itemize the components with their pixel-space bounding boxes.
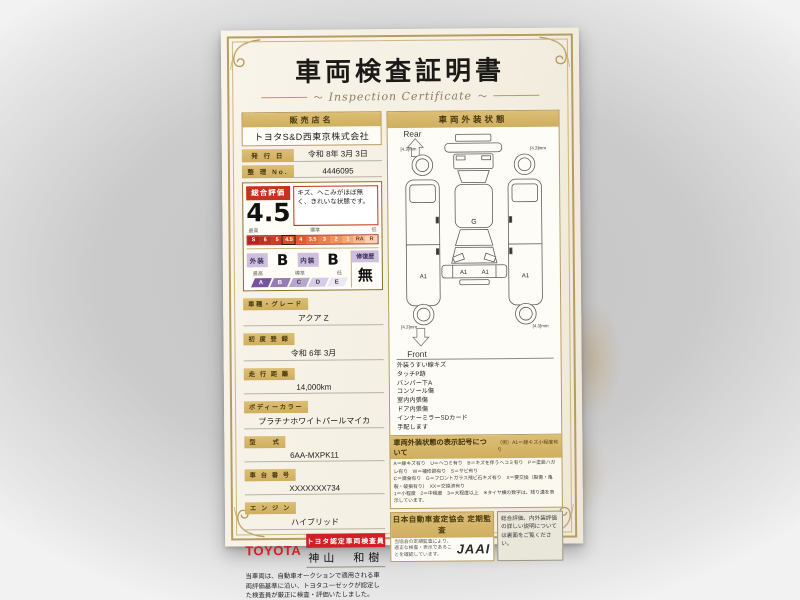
symbols-line: A＝線キズ有り U＝ヘコミ有り B＝キズを伴うヘコミ有り P＝塗装ハガレ有り W… (394, 460, 559, 476)
tire-depth-label: [4.3]mm (401, 324, 417, 329)
scale-cell-selected: 4.5 (283, 236, 295, 244)
scale-cell: 3.5 (307, 235, 319, 243)
field-chassis-number: 車 台 番 号 XXXXXXX734 (245, 463, 385, 495)
scale-high-label: 最高 (248, 227, 258, 234)
field-value: 6AA-MXPK11 (244, 448, 384, 462)
scale-mid-label: 標準 (295, 270, 305, 277)
field-engine: エ ン ジ ン ハイブリッド (245, 496, 385, 530)
field-value: ハイブリッド (245, 514, 385, 530)
field-label: 車 台 番 号 (245, 469, 296, 481)
ref-number-label: 整 理 No. (242, 164, 294, 177)
grade-scale-bar: A B C D E (247, 276, 348, 288)
left-door-mark: A1 (420, 274, 427, 280)
exterior-condition-title: 車両外装状態 (387, 111, 558, 128)
scale-cell: RA (354, 235, 366, 243)
rear-label: Rear (403, 129, 421, 139)
repair-history-value: 無 (352, 262, 379, 287)
inspector-badge: トヨタ認定車両検査員 (306, 533, 385, 548)
issue-date-value: 令和 8年 3月 3日 (294, 148, 382, 162)
jaai-logo: JAAI (457, 541, 491, 556)
repair-history-label: 修復歴 (352, 250, 379, 262)
ornament: ～ (478, 89, 487, 102)
ref-number-row: 整 理 No. 4446095 (242, 164, 382, 178)
scale-low-label: 低 (371, 226, 376, 233)
field-value: アクア Z (243, 310, 383, 326)
field-label: エ ン ジ ン (245, 502, 296, 514)
tire-depth-label: [4.3]mm (401, 146, 417, 151)
inspector-name: 神山 和樹 (306, 547, 385, 568)
disclaimer-text: 当車両は、自動車オークションで適用される車両評価基準に沿い、トヨタユーゼックが認… (245, 571, 385, 600)
front-bumper-mark: A1 (460, 270, 467, 276)
field-label: 車種・グレード (243, 298, 308, 311)
interior-grade-label: 内装 (297, 252, 318, 266)
repair-history-block: 修復歴 無 (351, 250, 379, 287)
field-first-registration: 初 度 登 録 令和 6年 3月 (243, 327, 383, 361)
inspector-block: TOYOTA トヨタ認定車両検査員 神山 和樹 (245, 533, 385, 569)
note-line: 手配します (397, 422, 554, 432)
condition-notes: 外装うすい線キズ タッチP跡 バンパー下A コンソール傷 室内内張傷 ドア内張傷… (397, 358, 555, 433)
symbols-legend-box: 車両外装状態の表示記号について （例）A1＝線キズ小程度有り A＝線キズ有り U… (389, 435, 563, 509)
subtitle-text: Inspection Certificate (329, 89, 472, 103)
scale-cell: 3 (318, 235, 330, 243)
divider (493, 95, 539, 96)
scale-cell: 5 (271, 236, 283, 244)
field-label: 型 式 (244, 436, 285, 448)
grade-cell: E (327, 277, 348, 286)
field-model-code: 型 式 6AA-MXPK11 (244, 430, 384, 462)
exterior-grade-value: B (268, 251, 298, 269)
scale-cell: R (366, 235, 378, 243)
interior-grade-value: B (318, 250, 348, 268)
scale-cell: 6 (259, 236, 271, 244)
symbols-title: 車両外装状態の表示記号について (393, 437, 493, 458)
field-value: 令和 6年 3月 (244, 345, 384, 361)
rating-comment: キズ、へこみがほぼ無く、きれいな状態です。 (293, 185, 378, 226)
dealer-name: トヨタS&D西東京株式会社 (243, 126, 381, 145)
issue-date-label: 発 行 日 (242, 148, 294, 161)
tire-depth-label: [4.3]mm (530, 145, 546, 150)
dealer-label: 販売店名 (242, 112, 380, 127)
field-label: 走 行 距 離 (244, 368, 295, 380)
symbols-line: 1＝小程度 2＝中程度 3＝大程度以上 ※タイヤ横の数字は、残り溝を表示していま… (394, 490, 559, 506)
certificate-subtitle: ～ Inspection Certificate ～ (241, 89, 559, 105)
scale-cell: 1 (342, 235, 354, 243)
toyota-logo: TOYOTA (245, 543, 301, 558)
front-bumper-mark: A1 (482, 270, 489, 276)
tire-depth-label: [4.3]mm (533, 323, 549, 328)
ornament: ～ (314, 91, 323, 104)
issue-date-row: 発 行 日 令和 8年 3月 3日 (242, 148, 382, 162)
back-side-note: 総合評価、内外装評価の詳しい説明については裏面をご覧ください。 (497, 511, 563, 562)
jaai-audit-box: 日本自動車査定協会 定期監査 当協会の定期監査により、適正な検査・表示であること… (390, 511, 494, 562)
right-column: 車両外装状態 (386, 110, 564, 600)
car-diagram-svg: Rear Front G A1 A1 A1 A1 [4.3]mm [4.3]mm… (390, 128, 559, 359)
car-exterior-diagram: Rear Front G A1 A1 A1 A1 [4.3]mm [4.3]mm… (388, 127, 561, 359)
overall-rating-box: 総合評価 4.5 キズ、へこみがほぼ無く、きれいな状態です。 最高 標準 低 S (242, 181, 383, 291)
roof-mark: G (471, 219, 476, 226)
scale-cell: S (248, 236, 260, 244)
symbols-example: （例）A1＝線キズ小程度有り (497, 439, 558, 454)
grade-cell: D (308, 277, 329, 286)
field-value: プラチナホワイトパールマイカ (244, 413, 384, 429)
left-column: 販売店名 トヨタS&D西東京株式会社 発 行 日 令和 8年 3月 3日 整 理… (241, 111, 386, 600)
scale-cell: 2 (330, 235, 342, 243)
front-label: Front (407, 349, 427, 359)
dealer-box: 販売店名 トヨタS&D西東京株式会社 (241, 111, 381, 146)
divider (262, 97, 308, 98)
symbols-line: C＝腐食有り G＝フロントガラス飛ビ石キズ有り X＝要交換（裂傷・亀裂・破損有り… (394, 475, 559, 491)
exterior-grade-label: 外装 (247, 253, 268, 267)
scale-low-label: 低 (337, 269, 342, 276)
scale-mid-label: 標準 (310, 226, 320, 233)
grade-cell: B (270, 278, 291, 287)
jaai-title: 日本自動車査定協会 定期監査 (391, 512, 493, 538)
field-value: XXXXXXX734 (245, 481, 385, 495)
certificate-paper: 車両検査証明書 ～ Inspection Certificate ～ 販売店名 … (221, 27, 583, 546)
photo-backdrop: 車両検査証明書 ～ Inspection Certificate ～ 販売店名 … (0, 0, 800, 600)
grade-cell: A (251, 278, 272, 287)
rating-scale-bar: S 6 5 4.5 4 3.5 3 2 1 RA R (247, 234, 379, 245)
scale-high-label: 最高 (253, 270, 263, 277)
grade-cell: C (289, 278, 310, 287)
exterior-condition-box: 車両外装状態 (386, 110, 562, 437)
field-body-color: ボディーカラー プラチナホワイトパールマイカ (244, 395, 384, 429)
scale-cell: 4 (295, 236, 307, 244)
overall-rating-score: 4.5 (246, 199, 290, 226)
field-label: 初 度 登 録 (243, 333, 294, 345)
jaai-text: 当協会の定期監査により、適正な検査・表示であることを確認しています。 (394, 539, 455, 559)
right-door-mark: A1 (522, 273, 529, 279)
field-value: 14,000km (244, 380, 384, 394)
ref-number-value: 4446095 (294, 166, 382, 178)
field-mileage: 走 行 距 離 14,000km (244, 362, 384, 394)
certificate-title: 車両検査証明書 (241, 50, 559, 90)
field-model-grade: 車種・グレード アクア Z (243, 292, 383, 326)
field-label: ボディーカラー (244, 401, 308, 414)
